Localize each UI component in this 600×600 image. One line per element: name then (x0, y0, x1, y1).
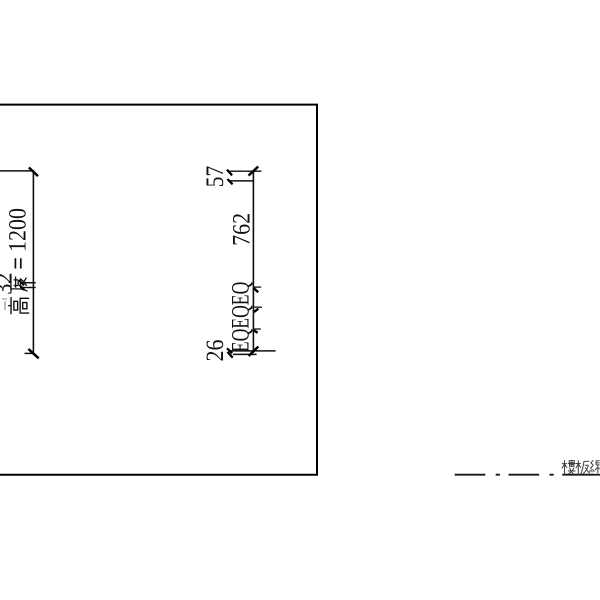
svg-text:1200: 1200 (5, 208, 32, 252)
svg-text:32: 32 (0, 273, 17, 295)
svg-text:26: 26 (202, 340, 229, 362)
svg-text:EQEQEQ: EQEQEQ (228, 282, 255, 353)
svg-text:762: 762 (228, 213, 255, 246)
svg-text:57: 57 (202, 166, 229, 188)
